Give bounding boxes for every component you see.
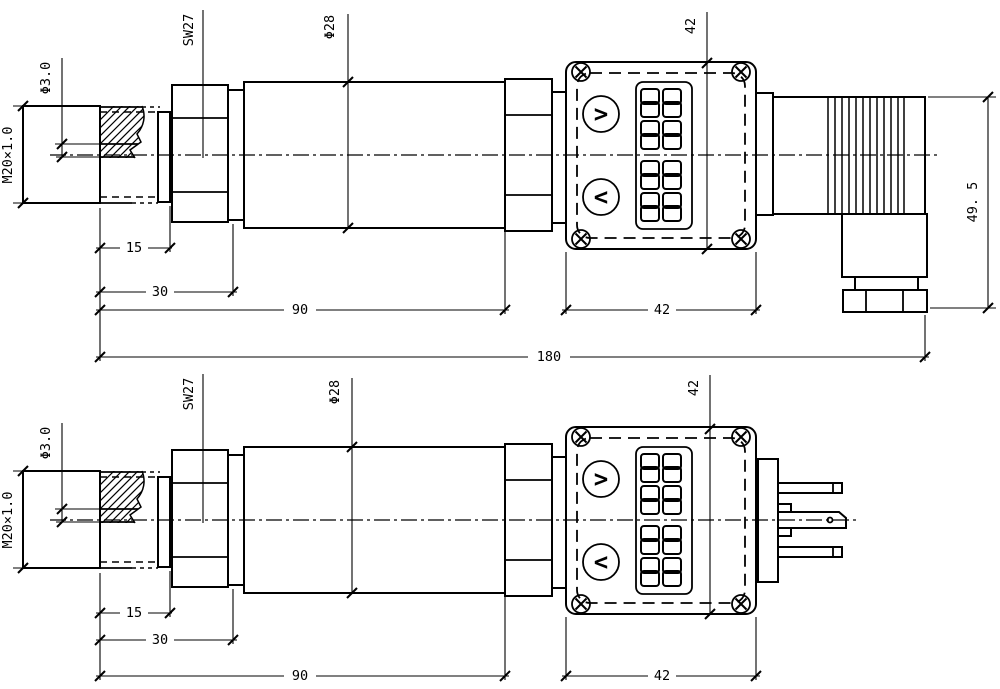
cable-gland-body	[842, 214, 927, 277]
collar	[552, 92, 566, 223]
down-arrow-icon: <	[594, 183, 608, 211]
body-diameter-label: Φ28	[322, 15, 338, 39]
pin-collar	[778, 504, 791, 512]
process-thread-label: M20×1.0	[0, 492, 16, 549]
pressure-transmitter-drawing: > <	[0, 0, 1000, 689]
connector-stub	[756, 93, 773, 215]
display-height-label: 42	[683, 18, 699, 34]
bore-diameter-label: Φ3.0	[38, 62, 54, 95]
technical-drawing-page: > <	[0, 0, 1000, 689]
dim-90-label: 90	[292, 668, 308, 684]
sealing-washer	[158, 112, 170, 202]
cable-gland-neck	[855, 277, 918, 290]
dim-30-label: 30	[152, 284, 168, 300]
dim-30-label: 30	[152, 632, 168, 648]
dim-15-label: 15	[126, 605, 142, 621]
process-thread-label: M20×1.0	[0, 127, 16, 184]
cable-gland-nut	[843, 290, 927, 312]
wrench-size-label: SW27	[181, 378, 197, 411]
bottom-view: Φ3.0 M20×1.0 SW27 Φ28 42	[0, 374, 858, 684]
break-line	[130, 106, 144, 158]
dim-42-label: 42	[654, 668, 670, 684]
dim-180-label: 180	[537, 349, 561, 365]
din-connector	[756, 93, 927, 312]
top-view: > <	[0, 10, 996, 365]
bore-diameter-label: Φ3.0	[38, 427, 54, 460]
body-diameter-label: Φ28	[327, 380, 343, 404]
pin-collar	[778, 528, 791, 536]
wrench-hex-nut	[172, 85, 228, 222]
dim-15-label: 15	[126, 240, 142, 256]
up-arrow-icon: >	[594, 100, 608, 128]
dim-90-label: 90	[292, 302, 308, 318]
dim-42-label: 42	[654, 302, 670, 318]
connector-height-label: 49. 5	[965, 182, 981, 223]
display-height-label: 42	[686, 380, 702, 396]
wrench-size-label: SW27	[181, 14, 197, 47]
